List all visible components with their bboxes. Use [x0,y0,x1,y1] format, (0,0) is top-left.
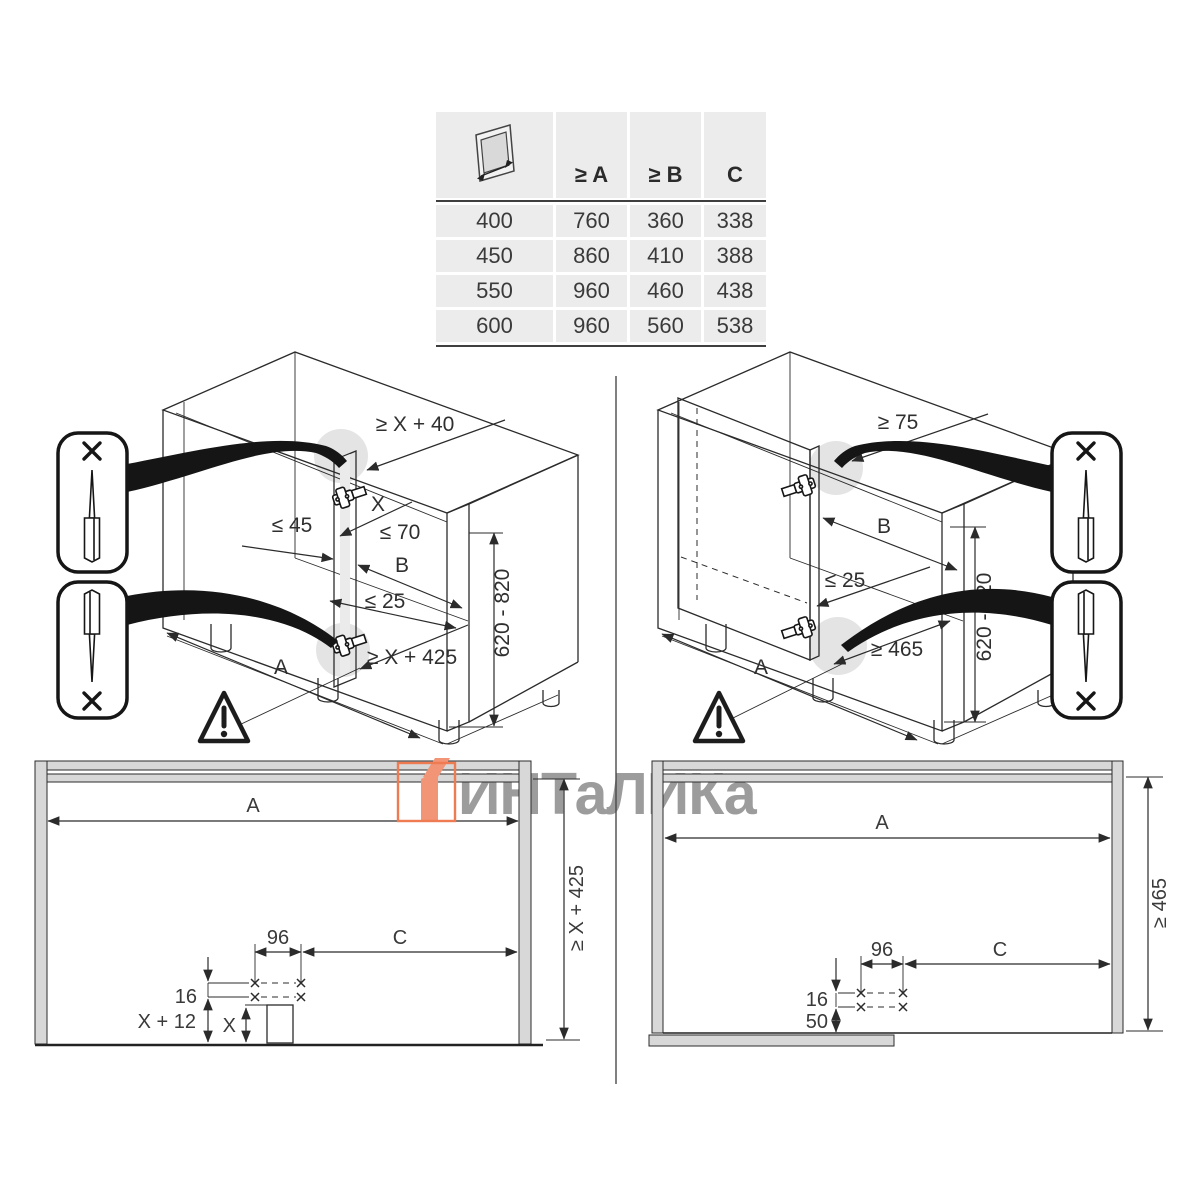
front-view-left: A ≥ X + 425 96 C 16 X + 12 X [35,761,588,1045]
warning-icon [200,693,248,741]
cell-door-width: 450 [436,240,553,272]
fv-left-height: ≥ X + 425 [566,865,588,951]
dim-label-height-right: 620 - 820 [973,573,996,662]
cell-c: 338 [704,205,766,237]
fv-left-c: C [393,927,407,949]
door-width-icon [464,119,526,191]
fv-right-height: ≥ 465 [1149,878,1171,928]
callout-boxes [58,433,1121,718]
door-width-icon-cell [436,112,553,198]
plinth-panel [649,1035,894,1046]
dim-label-height-left: 620 - 820 [491,569,514,658]
col-header-a: ≥ A [556,112,627,198]
fv-left-x: X [223,1015,236,1037]
fv-right-pitch: 96 [871,939,893,961]
dim-label-bottom-gap-left: ≥ X + 425 [367,646,457,669]
cell-door-width: 550 [436,275,553,307]
spec-table-header: ≥ A ≥ B C [436,112,766,198]
table-bottom-border [436,345,766,347]
dim-label-le25-left: ≤ 25 [365,590,406,613]
left-cabinet-drawing [163,352,578,744]
col-header-b: ≥ B [630,112,701,198]
spec-table: ≥ A ≥ B C 400 760 360 338 450 860 410 38… [436,112,766,347]
cell-c: 538 [704,310,766,342]
cell-a: 760 [556,205,627,237]
cell-b: 560 [630,310,701,342]
fv-left-offset: X + 12 [138,1011,196,1033]
fv-left-pitch: 96 [267,927,289,949]
dim-label-top-gap-right: ≥ 75 [878,411,919,434]
table-row: 600 960 560 538 [436,310,766,342]
cell-door-width: 600 [436,310,553,342]
col-header-c: C [704,112,766,198]
right-cabinet-drawing [658,352,1073,744]
callout-swooshes [127,441,1052,652]
dim-label-x-left: X [371,493,385,516]
fv-right-rowgap: 16 [806,989,828,1011]
dim-label-le45-left: ≤ 45 [272,514,313,537]
fv-right-c: C [993,939,1007,961]
cell-b: 410 [630,240,701,272]
dim-label-le25-right: ≤ 25 [825,569,866,592]
cell-b: 460 [630,275,701,307]
cell-b: 360 [630,205,701,237]
dim-label-a-left: A [274,656,288,679]
dim-label-a-right: A [754,656,768,679]
dim-label-le70-left: ≤ 70 [380,521,421,544]
dim-label-b-right: B [877,515,891,538]
cell-a: 860 [556,240,627,272]
cabinet-foot [211,624,231,652]
cell-c: 388 [704,240,766,272]
cell-a: 960 [556,310,627,342]
fv-left-a: A [246,795,260,817]
front-view-right: A ≥ 465 96 C 16 50 [649,761,1171,1046]
cabinet-foot [706,624,726,652]
cell-c: 438 [704,275,766,307]
dim-label-bottom-gap-right: ≥ 465 [871,638,923,661]
dim-label-top-gap-left: ≥ X + 40 [376,413,455,436]
brand-logo-icon [390,750,462,826]
dim-label-b-left: B [395,554,409,577]
fv-left-rowgap: 16 [175,986,197,1008]
table-row: 450 860 410 388 [436,240,766,272]
cell-a: 960 [556,275,627,307]
fv-right-plinth-gap: 50 [806,1011,828,1033]
table-header-divider [436,200,766,202]
page: ИНТаЛИКа [0,0,1200,1200]
table-row: 550 960 460 438 [436,275,766,307]
cell-door-width: 400 [436,205,553,237]
fv-right-a: A [875,812,889,834]
table-row: 400 760 360 338 [436,205,766,237]
obstacle-block [267,1005,293,1043]
